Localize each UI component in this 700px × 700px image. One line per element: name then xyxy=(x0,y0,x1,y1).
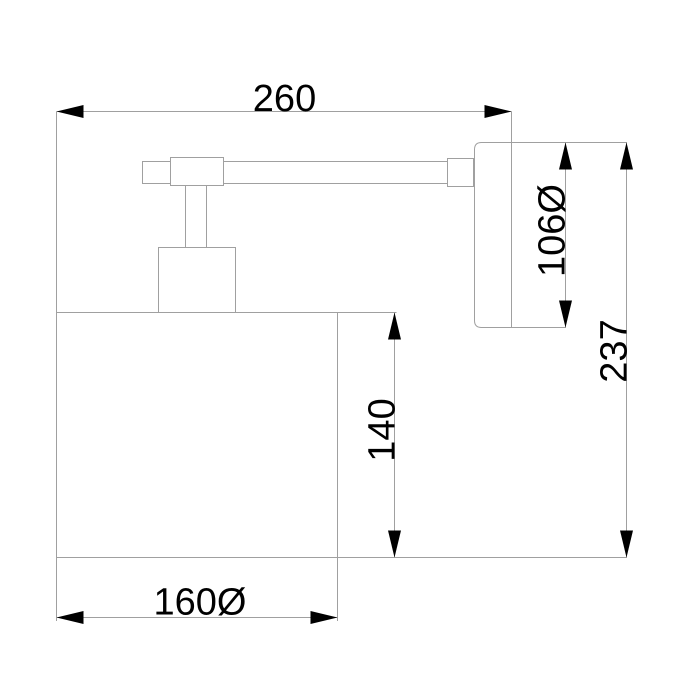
svg-text:160Ø: 160Ø xyxy=(154,582,247,624)
svg-text:260: 260 xyxy=(253,78,316,120)
svg-text:140: 140 xyxy=(361,398,403,461)
svg-text:106Ø: 106Ø xyxy=(532,184,574,277)
svg-text:237: 237 xyxy=(593,319,635,382)
